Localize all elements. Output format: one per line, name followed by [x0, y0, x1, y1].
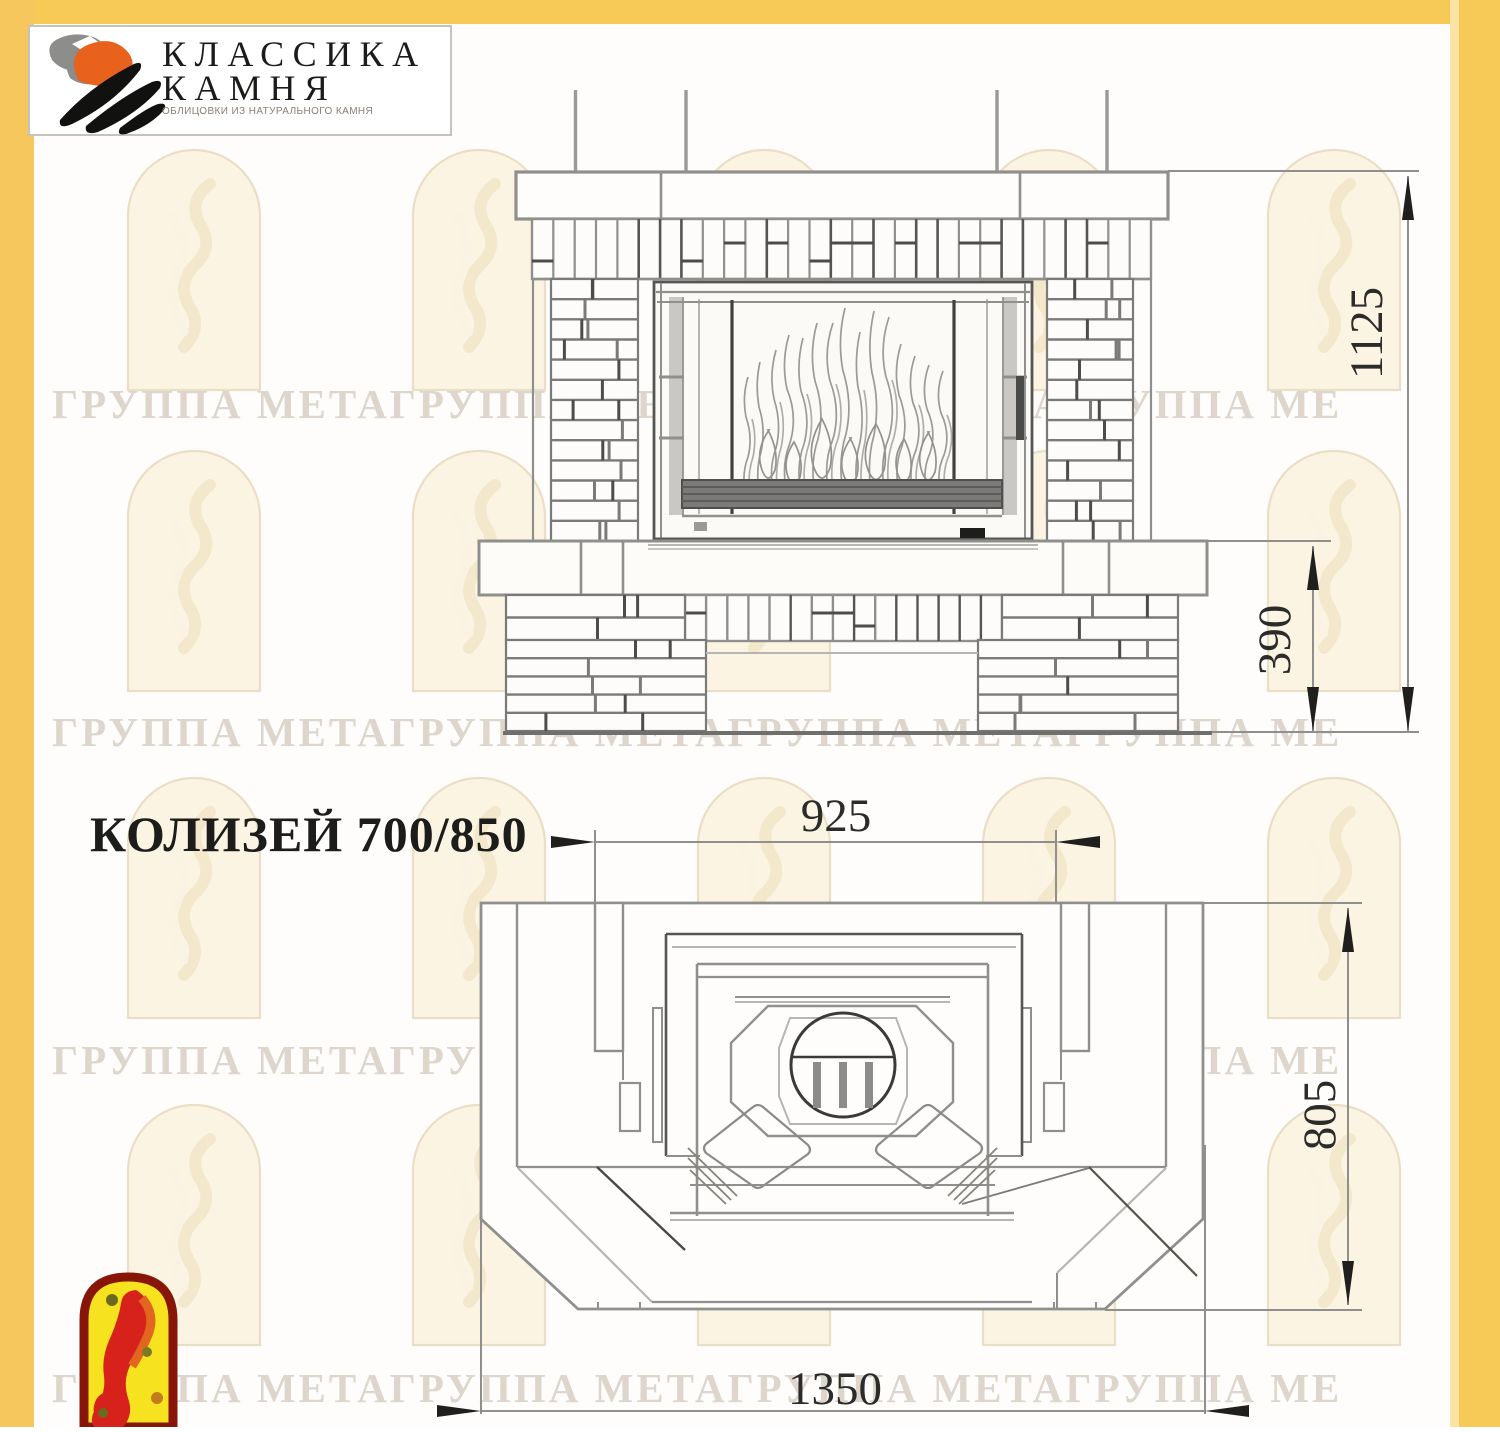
svg-text:1350: 1350	[788, 1363, 882, 1415]
svg-text:КАМНЯ: КАМНЯ	[162, 68, 337, 108]
svg-text:805: 805	[1294, 1080, 1346, 1151]
svg-text:1125: 1125	[1341, 287, 1393, 379]
svg-text:ГРУППА МЕТАГРУППА МЕТАГРУППА М: ГРУППА МЕТАГРУППА МЕТАГРУППА МЕТАГРУППА …	[52, 1365, 1342, 1411]
svg-text:ОБЛИЦОВКИ ИЗ НАТУРАЛЬНОГО КАМН: ОБЛИЦОВКИ ИЗ НАТУРАЛЬНОГО КАМНЯ	[162, 106, 373, 117]
svg-text:390: 390	[1249, 605, 1301, 676]
svg-text:925: 925	[801, 790, 872, 842]
svg-text:КОЛИЗЕЙ 700/850: КОЛИЗЕЙ 700/850	[90, 806, 528, 862]
